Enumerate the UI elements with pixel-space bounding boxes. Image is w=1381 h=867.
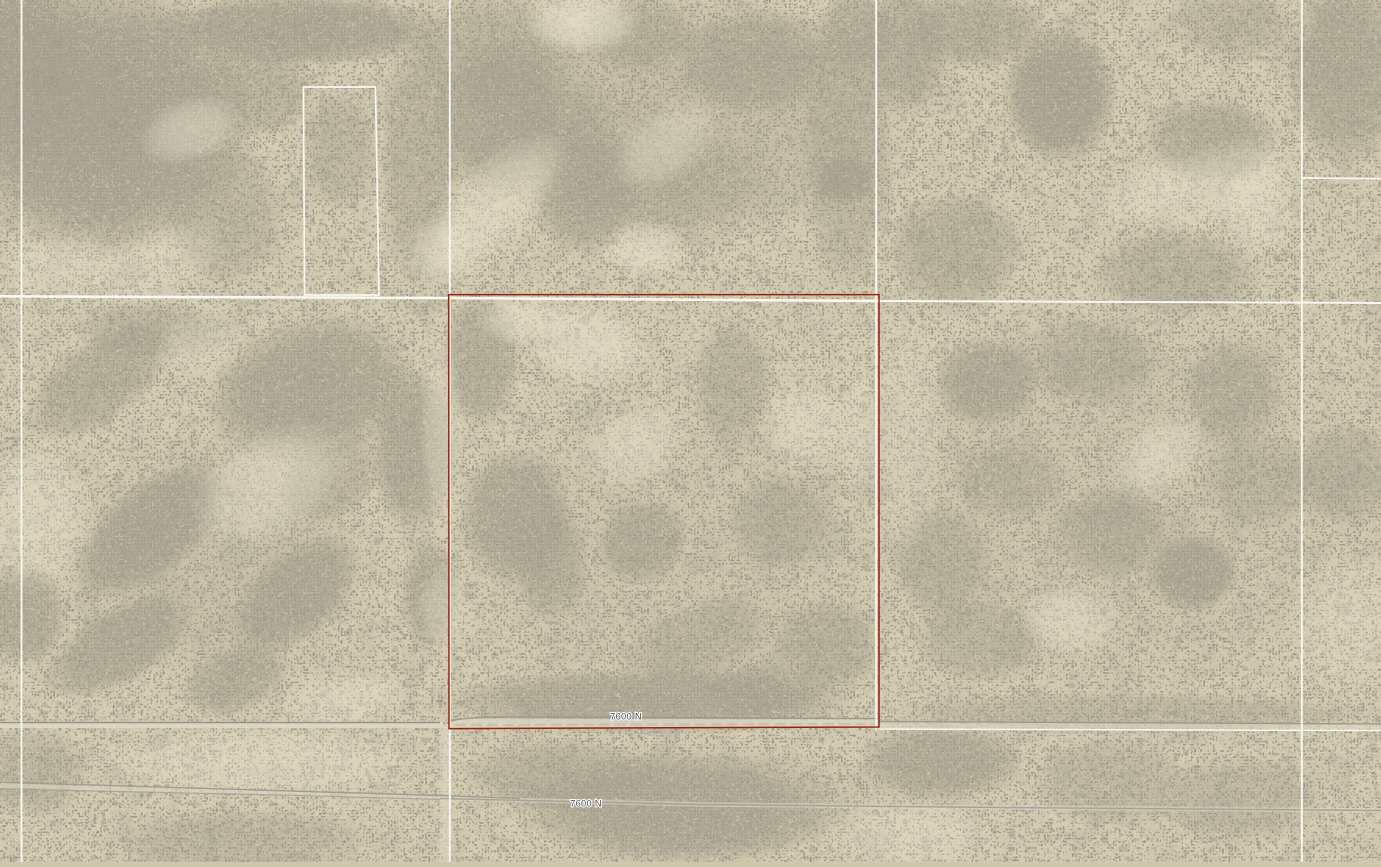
svg-text:7600 N: 7600 N [570,799,602,809]
svg-text:7600 N: 7600 N [610,712,642,722]
